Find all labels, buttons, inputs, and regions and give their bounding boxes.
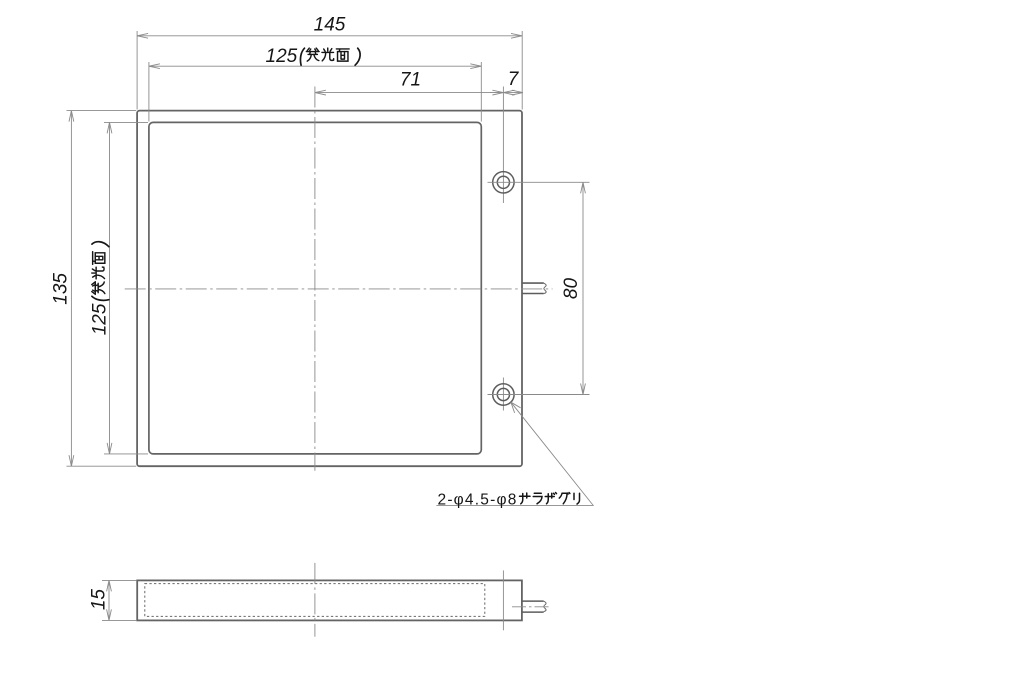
svg-text:7: 7 xyxy=(508,69,520,90)
svg-text:71: 71 xyxy=(400,70,421,91)
svg-text:145: 145 xyxy=(314,15,346,36)
svg-text:2-φ4.5-φ8: 2-φ4.5-φ8 xyxy=(438,491,518,508)
svg-text:80: 80 xyxy=(561,278,582,300)
svg-text:15: 15 xyxy=(89,589,110,611)
svg-text:135: 135 xyxy=(51,273,72,305)
svg-text:125: 125 xyxy=(266,46,298,67)
svg-text:125: 125 xyxy=(90,303,111,335)
